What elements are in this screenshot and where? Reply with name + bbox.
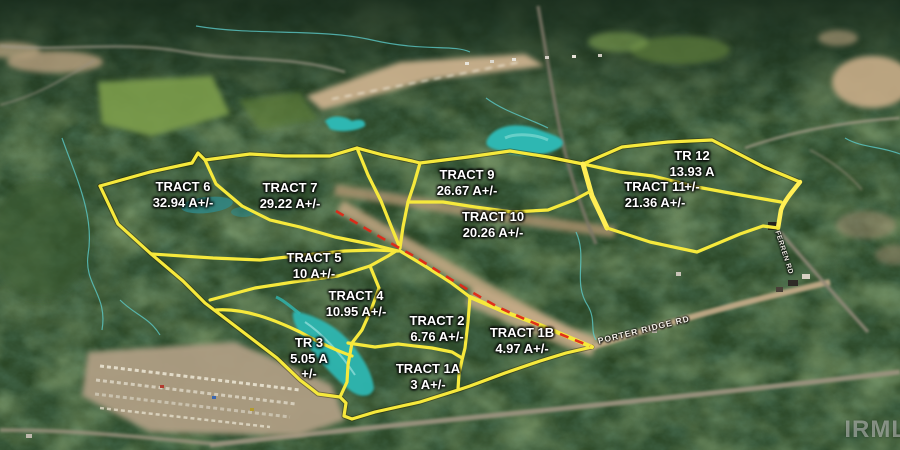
tract-label-9: TRACT 926.67 A+/-: [437, 167, 498, 198]
tract-label-1b: TRACT 1B4.97 A+/-: [490, 325, 554, 356]
tract-label-2: TRACT 26.76 A+/-: [410, 313, 465, 344]
tract-label-1a: TRACT 1A3 A+/-: [396, 361, 460, 392]
tract-label-3: TR 35.05 A+/-: [290, 335, 328, 382]
tract-label-7: TRACT 729.22 A+/-: [260, 180, 321, 211]
tract-label-10: TRACT 1020.26 A+/-: [462, 209, 524, 240]
aerial-tract-map: TRACT 632.94 A+/- TRACT 729.22 A+/- TRAC…: [0, 0, 900, 450]
tract-label-5: TRACT 510 A+/-: [287, 250, 342, 281]
tract-label-4: TRACT 410.95 A+/-: [326, 288, 387, 319]
tract-label-12: TR 1213.93 A+/-: [669, 148, 714, 195]
tract-label-6: TRACT 632.94 A+/-: [153, 179, 214, 210]
watermark-logo: IRML: [844, 416, 900, 444]
